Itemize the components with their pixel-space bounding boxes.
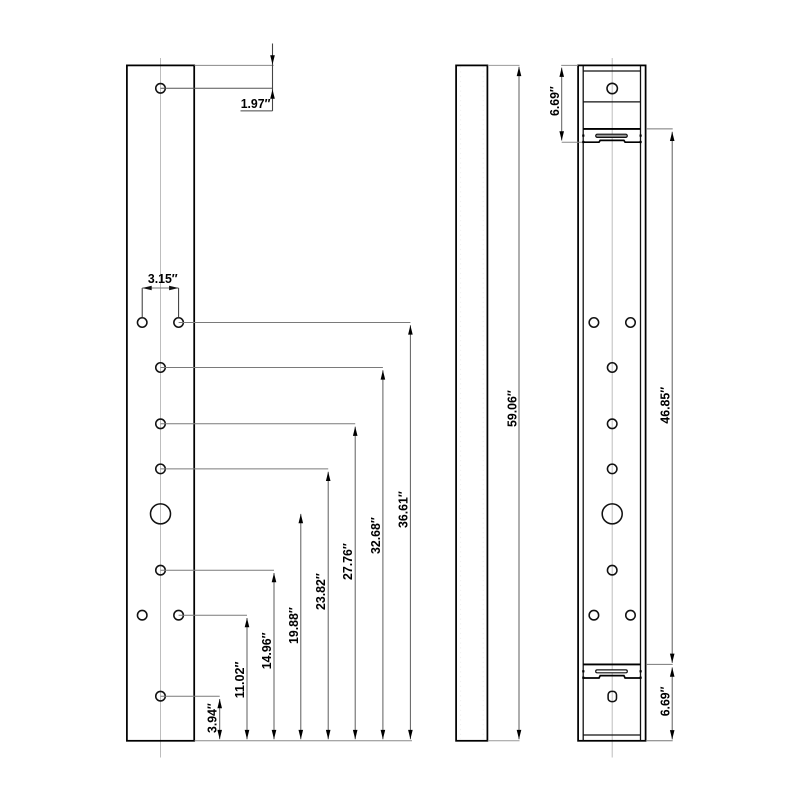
svg-text:6.69″: 6.69″ [547,86,562,116]
svg-text:3.15″: 3.15″ [148,271,178,286]
svg-text:6.69″: 6.69″ [658,687,673,717]
svg-text:11.02″: 11.02″ [232,662,247,699]
svg-text:32.68″: 32.68″ [368,517,383,554]
svg-text:14.96″: 14.96″ [259,633,274,670]
svg-text:59.06″: 59.06″ [504,390,519,427]
svg-text:3.94″: 3.94″ [205,703,220,733]
svg-text:36.61″: 36.61″ [395,491,410,528]
svg-text:46.85″: 46.85″ [658,387,673,424]
svg-text:27.76″: 27.76″ [340,543,355,580]
svg-text:1.97″: 1.97″ [241,96,271,111]
svg-text:23.82″: 23.82″ [313,573,328,610]
svg-text:19.88″: 19.88″ [286,607,301,644]
